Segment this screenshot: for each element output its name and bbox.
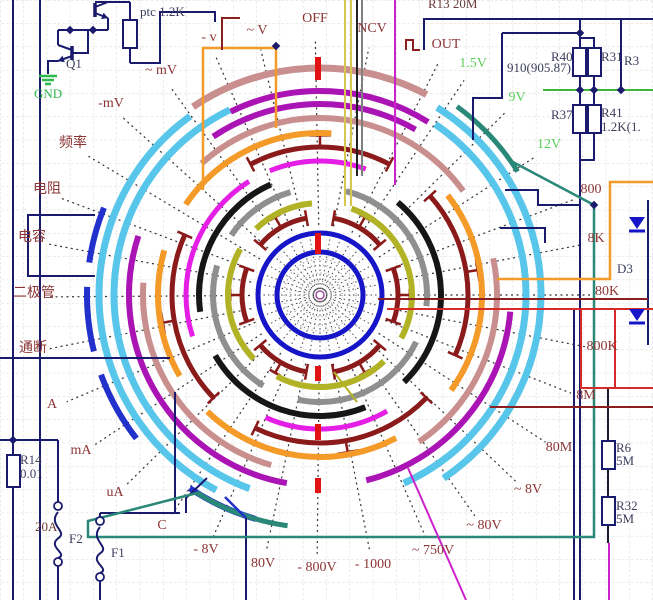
dial-label: ~ 8V bbox=[514, 482, 542, 497]
dial-label: 800K bbox=[586, 339, 617, 354]
dial-label: uA bbox=[106, 485, 124, 500]
dial-label: 二极管 bbox=[13, 285, 55, 301]
dial-label: -mV bbox=[98, 96, 124, 111]
dial-label: 1.5V bbox=[459, 56, 487, 71]
dial-label: mA bbox=[71, 443, 93, 458]
component-label: Q1 bbox=[66, 56, 82, 71]
component-label: F1 bbox=[111, 545, 125, 560]
dial-label: 电容 bbox=[18, 228, 46, 245]
dial-label: ~ V bbox=[247, 23, 268, 38]
resistor-R6 bbox=[602, 441, 615, 469]
component-label: R37 bbox=[551, 107, 573, 122]
resistor-R31 bbox=[588, 48, 601, 76]
dial-label: 80K bbox=[595, 284, 619, 299]
dial-label: 电阻 bbox=[33, 181, 61, 197]
dial-label: ~ mV bbox=[145, 63, 177, 78]
component-label: R3 bbox=[624, 53, 639, 68]
dial-label: 80V bbox=[251, 556, 275, 571]
component-label: D3 bbox=[617, 261, 633, 276]
schematic-canvas: OFFNCVOUT~ V- v~ mV-mV频率电阻电容二极管通断AmAuAC-… bbox=[0, 0, 653, 600]
resistor-R32 bbox=[602, 497, 615, 525]
dial-label: 12V bbox=[537, 137, 561, 152]
dial-label: - 8V bbox=[193, 542, 218, 557]
resistor-R41 bbox=[588, 105, 601, 133]
component-label: F2 bbox=[69, 531, 83, 546]
dial-label: 9V bbox=[508, 90, 525, 105]
component-label: 5M bbox=[616, 511, 635, 526]
component-label: R14 bbox=[20, 452, 42, 467]
dial-label: - 1000 bbox=[355, 557, 391, 572]
dial-label: 通断 bbox=[19, 340, 47, 356]
ptc-resistor bbox=[123, 20, 137, 48]
component-label: 5M bbox=[616, 453, 635, 468]
dial-label: 频率 bbox=[59, 134, 87, 151]
component-label: R40 bbox=[551, 49, 573, 64]
dial-label: - v bbox=[201, 30, 216, 45]
dial-label: 800 bbox=[581, 182, 602, 197]
dial-label: OUT bbox=[432, 37, 461, 52]
dial-label: C bbox=[157, 518, 166, 533]
dial-label: 8K bbox=[587, 231, 604, 246]
dial-label: OFF bbox=[302, 11, 328, 26]
fuse-terminal bbox=[96, 573, 104, 581]
dial-label: ~ 750V bbox=[412, 543, 454, 558]
resistor-R40 bbox=[573, 48, 586, 76]
dial-label: A bbox=[47, 397, 58, 412]
component-label: 20A bbox=[35, 519, 58, 534]
component-label: GND bbox=[34, 86, 62, 101]
dial-label: NCV bbox=[357, 21, 387, 36]
resistor-R37 bbox=[573, 105, 586, 133]
component-label: R13 20M bbox=[428, 0, 478, 11]
component-label: R41 bbox=[601, 105, 623, 120]
fuse-terminal bbox=[54, 502, 62, 510]
dial-label: 8M bbox=[576, 388, 596, 403]
component-label: ptc 1.2K bbox=[140, 4, 185, 19]
fuse-terminal bbox=[54, 558, 62, 566]
resistor-R14 bbox=[7, 455, 20, 487]
component-label: R31 bbox=[601, 49, 623, 64]
component-label: 0.01 bbox=[20, 466, 43, 481]
dial-label: 80M bbox=[546, 440, 573, 455]
fuse-terminal bbox=[96, 517, 104, 525]
component-label: 1.2K(1. bbox=[601, 119, 641, 134]
dial-label: - 800V bbox=[297, 560, 336, 575]
dial-label: ~ 80V bbox=[466, 518, 501, 533]
schematic-page: OFFNCVOUT~ V- v~ mV-mV频率电阻电容二极管通断AmAuAC-… bbox=[0, 0, 653, 600]
